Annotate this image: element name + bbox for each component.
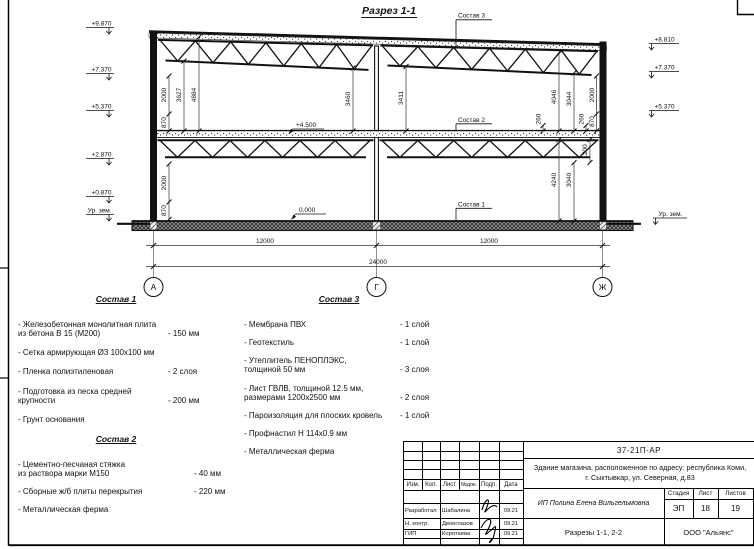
floor-truss-left	[158, 140, 374, 157]
spec-name: - Пароизоляция для плоских кровель	[244, 411, 400, 420]
spec-name: - Металлическая ферма	[244, 447, 400, 456]
leader-arrow	[292, 215, 297, 220]
spec-value: - 2 слоя	[400, 393, 434, 402]
floor-truss-right	[380, 140, 599, 157]
role-developed: Разработал	[405, 503, 440, 518]
spec-name: - Мембрана ПВХ	[244, 320, 400, 329]
dim-24000: 24000	[369, 259, 387, 266]
sheets-total: 19	[718, 499, 753, 518]
signature-lower	[481, 519, 496, 542]
spec-name: - Сетка армирующая Ø3 100х100 мм	[18, 348, 168, 357]
dim-12000-right: 12000	[480, 238, 498, 245]
elev-2870: +2.870	[91, 152, 111, 159]
sostav-3-block: Состав 3 - Мембрана ПВХ- 1 слой - Геотек…	[244, 295, 434, 456]
sheet-title: Разрезы 1-1, 2-2	[523, 518, 664, 546]
column-footprint	[373, 222, 381, 230]
column-footprint	[150, 222, 157, 230]
rev-col-list: Лист	[440, 479, 459, 490]
elevation-marks-left: +9.870 +7.370 +5.370 +2.870 +0.870 Ур. з…	[86, 21, 114, 222]
object-description: Здание магазина, расположенное по адресу…	[525, 458, 754, 488]
spec-row: - Пароизоляция для плоских кровель- 1 сл…	[244, 411, 434, 420]
spec-value: - 1 слой	[400, 411, 434, 420]
dim-260-b: 260	[579, 113, 586, 124]
top-right-stamp-corner	[738, 0, 754, 15]
spec-name: - Лист ГВЛВ, толщиной 12.5 мм, размерами…	[244, 384, 400, 402]
leader-sostav-3: Состав 3	[458, 13, 485, 20]
spec-name: - Профнастил Н 114х0.9 мм	[244, 429, 400, 438]
date-gip: 09.21	[499, 529, 523, 538]
elev-7370-l: +7.370	[91, 67, 111, 74]
spec-value: - 3 слоя	[400, 365, 434, 374]
spec-name: - Подготовка из песка средней крупности	[18, 387, 168, 405]
floor-band	[157, 131, 600, 136]
dim-4240: 4240	[551, 172, 558, 187]
spec-value: - 220 мм	[194, 487, 242, 496]
axis-a: А	[151, 282, 157, 292]
spec-row: - Сборные ж/б плиты перекрытия- 220 мм	[18, 487, 242, 496]
spec-row: - Профнастил Н 114х0.9 мм	[244, 429, 434, 438]
dim-3040: 3040	[566, 172, 573, 187]
leader-sostav-2: Состав 2	[458, 117, 485, 124]
sheets-label: Листов	[718, 488, 753, 499]
name-ncontrol: Двоеглазов	[442, 518, 479, 529]
dim-260-a: 260	[536, 113, 543, 124]
spec-name: - Геотекстиль	[244, 338, 400, 347]
drawing-sheet: { "drawing": { "title": "Разрез 1-1", "l…	[0, 0, 754, 549]
sostav-1-block: Состав 1 - Железобетонная монолитная пли…	[18, 295, 214, 424]
sostav-3-header: Состав 3	[244, 295, 434, 305]
elev-ground-right: Ур. зем.	[659, 211, 683, 218]
sostav-2-block: Состав 2 - Цементно-песчаная стяжка из р…	[18, 435, 242, 515]
rev-col-kol: Кол.	[422, 479, 440, 490]
stage-label: Стадия	[664, 488, 693, 499]
rev-col-izm: Изм.	[404, 479, 422, 490]
spec-row: - Геотекстиль- 1 слой	[244, 338, 434, 347]
dim-870-upper-right: 870	[589, 116, 596, 127]
spec-value: - 40 мм	[194, 469, 242, 478]
leader-sostav-1: Состав 1	[458, 201, 485, 208]
dim-2000-upper-right: 2000	[589, 87, 596, 102]
spec-value: - 1 слой	[400, 320, 434, 329]
dim-4884: 4884	[191, 87, 198, 102]
dim-1200: 1200	[582, 144, 589, 159]
document-code: 37-21П-АР	[523, 442, 754, 458]
roof-truss-left	[158, 40, 373, 70]
dim-3627: 3627	[176, 87, 183, 102]
elev-0870: +0.870	[91, 190, 111, 197]
elev-8810: +8.810	[655, 37, 675, 44]
spec-row: - Лист ГВЛВ, толщиной 12.5 мм, размерами…	[244, 384, 434, 402]
role-ncontrol: Н. контр.	[405, 518, 440, 529]
dim-2000-upper-left: 2000	[161, 87, 168, 102]
spec-name: - Пленка полиэтиленовая	[18, 367, 168, 376]
spec-row: - Металлическая ферма	[18, 505, 242, 514]
spec-row: - Железобетонная монолитная плита из бет…	[18, 320, 214, 338]
rev-col-podp: Подп.	[479, 479, 499, 490]
dim-870-lower-left: 870	[161, 205, 168, 216]
elev-5370-l: +5.370	[91, 104, 111, 111]
spec-name: - Железобетонная монолитная плита из бет…	[18, 320, 168, 338]
view-title: Разрез 1-1	[361, 5, 417, 18]
spec-row: - Подготовка из песка средней крупности-…	[18, 387, 214, 405]
spec-value: - 150 мм	[168, 329, 214, 338]
column-footprint	[600, 222, 607, 230]
spec-name: - Грунт основания	[18, 415, 168, 424]
spec-name: - Утеплитель ПЕНОПЛЭКС, толщиной 50 мм	[244, 356, 400, 374]
object-line-1: Здание магазина, расположенное по адресу…	[534, 463, 746, 473]
date-developed: 09.21	[499, 503, 523, 518]
spec-name: - Цементно-песчаная стяжка из раствора м…	[18, 460, 194, 478]
object-line-2: г. Сыктывкар, ул. Северная, д.83	[585, 473, 694, 483]
dim-870-upper-left: 870	[161, 117, 168, 128]
sheet-number: 18	[693, 499, 718, 518]
dim-3044: 3044	[566, 91, 573, 106]
name-gip: Коротаева	[442, 529, 479, 538]
sostav-2-header: Состав 2	[18, 435, 214, 445]
wall-left	[150, 31, 157, 222]
elev-5370-r: +5.370	[655, 104, 675, 111]
roof-truss-right	[381, 46, 599, 76]
sheet-label: Лист	[693, 488, 718, 499]
title-block: Изм. Кол. Лист №док. Подп. Дата Разработ…	[403, 441, 754, 546]
dim-3460: 3460	[345, 91, 352, 106]
axis-markers: А Г Ж	[144, 278, 612, 297]
sostav-1-header: Состав 1	[18, 295, 214, 305]
spec-name: - Металлическая ферма	[18, 505, 194, 514]
spec-row: - Цементно-песчаная стяжка из раствора м…	[18, 460, 242, 478]
axis-j: Ж	[599, 282, 607, 292]
elev-ground-left: Ур. зем.	[88, 208, 112, 215]
dim-3411: 3411	[398, 91, 405, 105]
name-developed: Шабалина	[442, 503, 479, 518]
dim-2000-lower-left: 2000	[161, 175, 168, 190]
level-4500: +4.500	[296, 122, 316, 129]
date-ncontrol: 09.21	[499, 518, 523, 529]
signature-developed	[482, 500, 497, 512]
stage-value: ЭП	[664, 499, 693, 518]
spec-row: - Пленка полиэтиленовая- 2 слоя	[18, 367, 214, 376]
spec-row: - Утеплитель ПЕНОПЛЭКС, толщиной 50 мм- …	[244, 356, 434, 374]
section-title: Разрез 1-1	[362, 5, 416, 17]
company-name: ООО "Альянс"	[664, 518, 753, 546]
elevation-marks-right: +8.810 +7.370 +5.370 Ур. зем.	[649, 37, 687, 225]
role-gip: ГИП	[405, 529, 440, 538]
spec-value: - 200 мм	[168, 396, 214, 405]
dim-4046: 4046	[551, 89, 558, 104]
spec-name: - Сборные ж/б плиты перекрытия	[18, 487, 194, 496]
signatures	[478, 494, 500, 546]
elev-7370-r: +7.370	[655, 65, 675, 72]
spec-value: - 1 слой	[400, 338, 434, 347]
spec-row: - Мембрана ПВХ- 1 слой	[244, 320, 434, 329]
elev-9870: +9.870	[91, 21, 111, 28]
spec-row: - Грунт основания	[18, 415, 214, 424]
axis-g: Г	[374, 282, 379, 292]
wall-right	[600, 42, 607, 222]
rev-col-ndoc: №док.	[459, 479, 479, 490]
rev-col-data: Дата	[499, 479, 523, 490]
dim-12000-left: 12000	[256, 238, 274, 245]
client-name: ИП Полина Елена Вильгельмовна	[523, 488, 664, 518]
level-0000: 0.000	[299, 207, 316, 214]
building-section	[117, 31, 641, 231]
spec-value: - 2 слоя	[168, 367, 214, 376]
spec-row: - Сетка армирующая Ø3 100х100 мм	[18, 348, 214, 357]
